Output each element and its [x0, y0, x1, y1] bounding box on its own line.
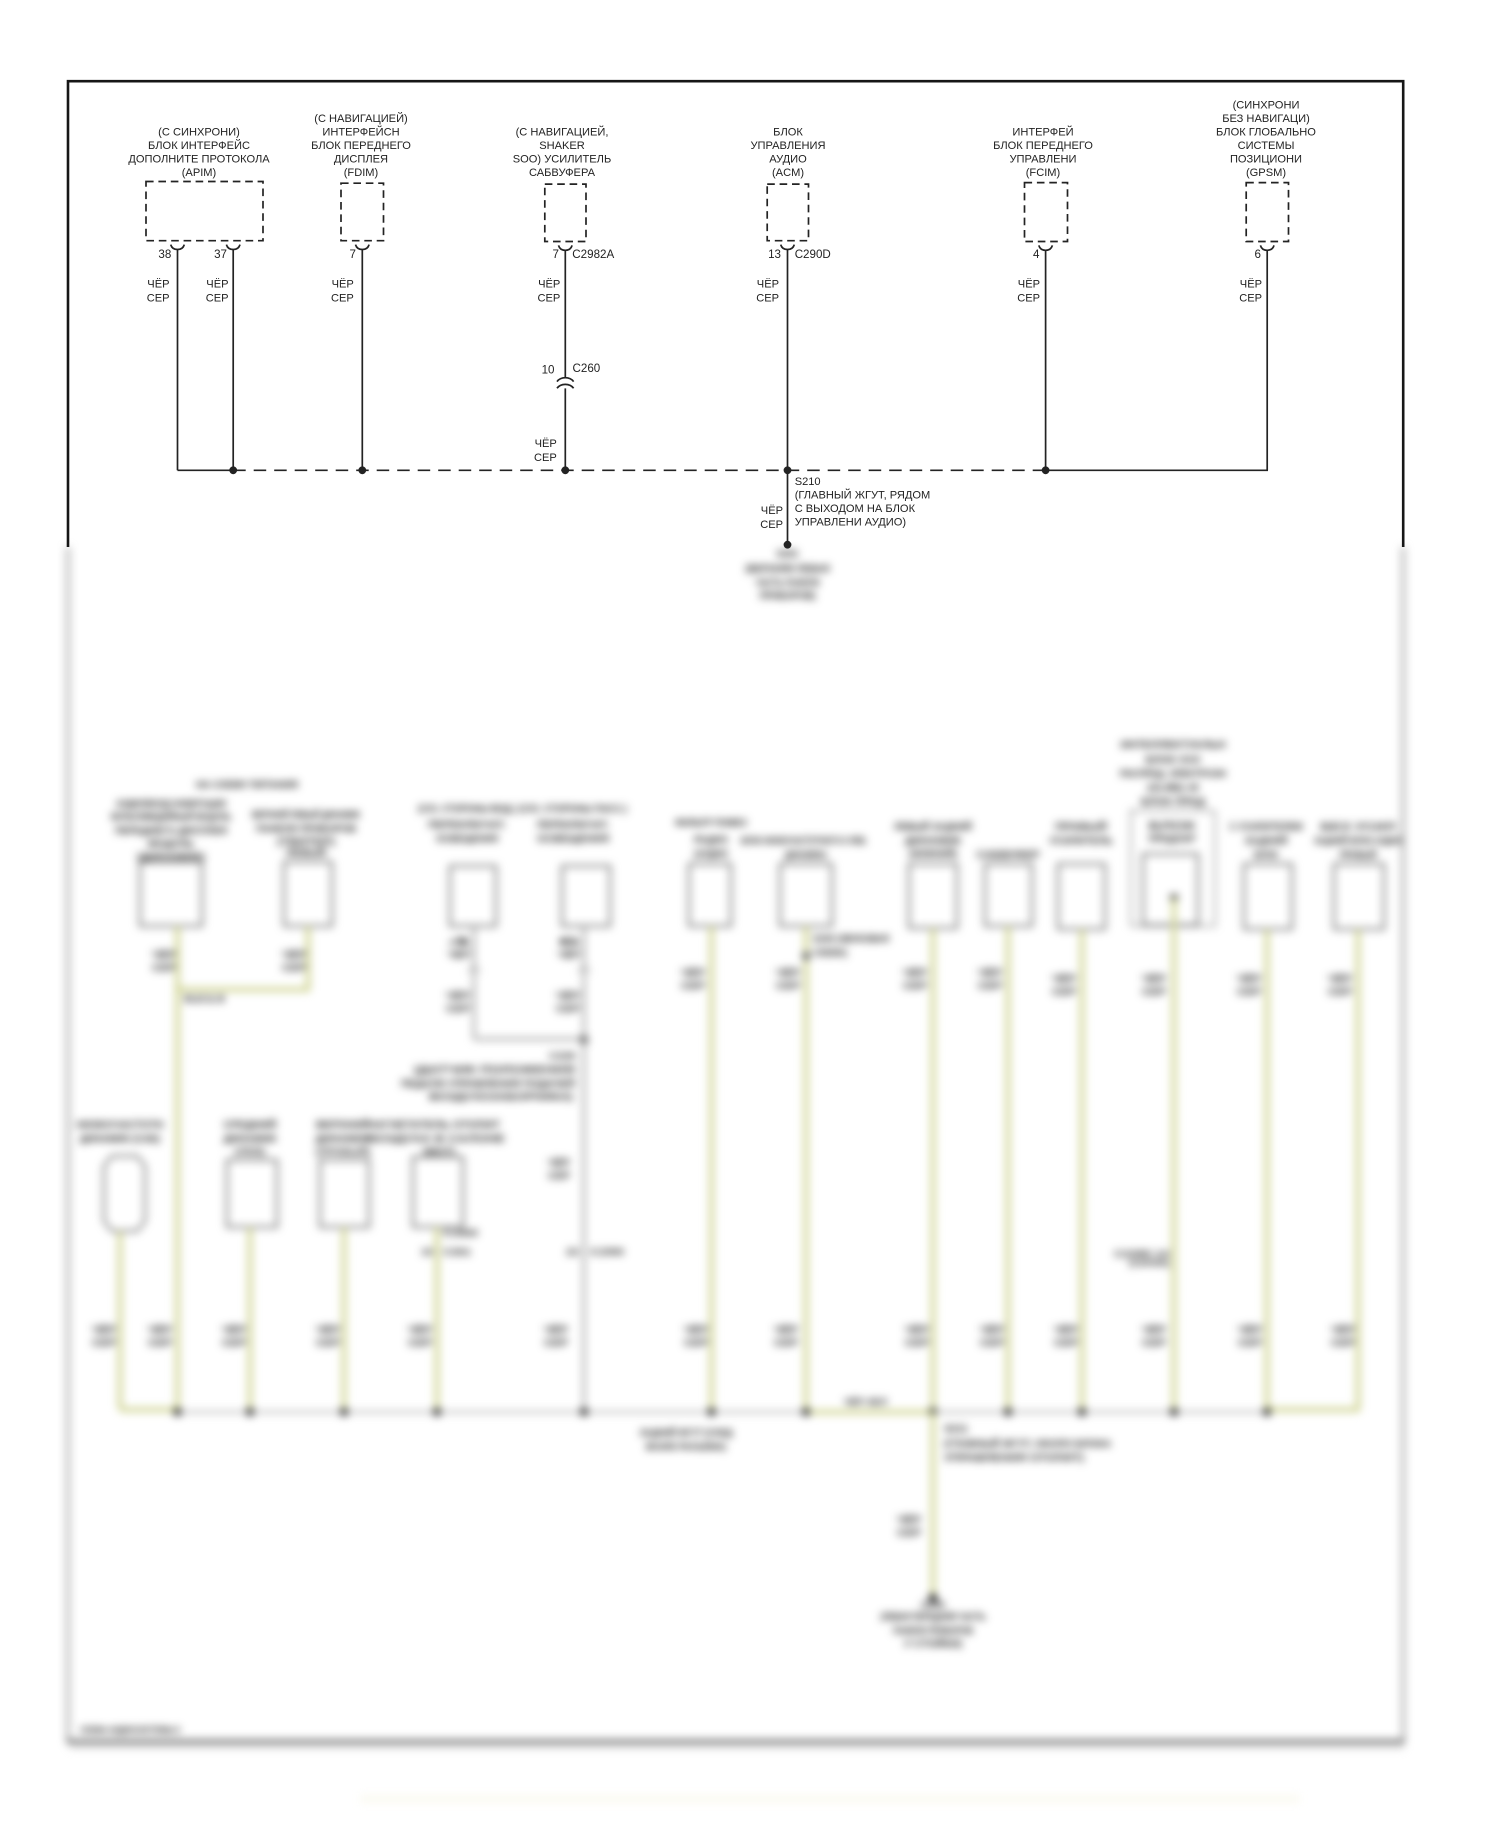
svg-text:ЧЁР: ЧЁР — [1018, 279, 1040, 291]
svg-text:6: 6 — [1255, 248, 1261, 261]
svg-text:(ГЛАВНЫЙ ЖГУТ, РЯДОМ: (ГЛАВНЫЙ ЖГУТ, РЯДОМ — [795, 488, 931, 501]
svg-text:7: 7 — [553, 248, 559, 261]
svg-text:(С НАВИГАЦИЕЙ,: (С НАВИГАЦИЕЙ, — [516, 126, 609, 139]
svg-text:СЕР: СЕР — [331, 293, 354, 305]
svg-text:СЕР: СЕР — [537, 293, 560, 305]
svg-text:УПРАВЛЕНИ АУДИО): УПРАВЛЕНИ АУДИО) — [795, 516, 906, 528]
svg-text:ДОПОЛНИТЕ ПРОТОКОЛА: ДОПОЛНИТЕ ПРОТОКОЛА — [128, 154, 270, 166]
svg-text:ИНТЕРФЕЙ: ИНТЕРФЕЙ — [1012, 126, 1073, 139]
svg-text:(С НАВИГАЦИЕЙ): (С НАВИГАЦИЕЙ) — [314, 112, 407, 125]
svg-text:АУДИО: АУДИО — [769, 154, 807, 166]
svg-text:БЛОК ПЕРЕДНЕГО: БЛОК ПЕРЕДНЕГО — [311, 140, 411, 152]
svg-text:SOO) УСИЛИТЕЛЬ: SOO) УСИЛИТЕЛЬ — [513, 154, 611, 166]
svg-text:БЛОК ГЛОБАЛЬНО: БЛОК ГЛОБАЛЬНО — [1216, 127, 1316, 139]
svg-text:СЕР: СЕР — [534, 452, 557, 464]
svg-text:ЧЁР: ЧЁР — [147, 279, 169, 291]
svg-text:ДИСПЛЕЯ: ДИСПЛЕЯ — [334, 154, 388, 166]
svg-text:37: 37 — [214, 248, 227, 261]
svg-text:C2982A: C2982A — [572, 248, 614, 261]
svg-text:C260: C260 — [573, 362, 601, 375]
svg-text:S210: S210 — [795, 476, 821, 488]
svg-text:(FDIM): (FDIM) — [344, 167, 379, 179]
svg-text:СЕР: СЕР — [1239, 293, 1262, 305]
svg-text:(APIM): (APIM) — [182, 167, 217, 179]
svg-text:УПРАВЛЕНИ: УПРАВЛЕНИ — [1009, 154, 1076, 166]
svg-text:БЛОК: БЛОК — [773, 127, 803, 139]
svg-text:ПОЗИЦИОНИ: ПОЗИЦИОНИ — [1230, 154, 1302, 166]
svg-text:С ВЫХОДОМ НА БЛОК: С ВЫХОДОМ НА БЛОК — [795, 503, 916, 515]
svg-text:(СИНХРОНИ: (СИНХРОНИ — [1233, 100, 1300, 112]
svg-text:ЧЁР: ЧЁР — [206, 279, 228, 291]
svg-text:(FCIM): (FCIM) — [1026, 167, 1061, 179]
svg-text:SHAKER: SHAKER — [539, 140, 585, 152]
svg-text:БЛОК ПЕРЕДНЕГО: БЛОК ПЕРЕДНЕГО — [993, 140, 1093, 152]
svg-text:10: 10 — [542, 364, 555, 377]
svg-text:(С СИНХРОНИ): (С СИНХРОНИ) — [158, 127, 240, 139]
svg-text:38: 38 — [158, 248, 171, 261]
svg-text:СЕР: СЕР — [206, 293, 229, 305]
svg-text:СЕР: СЕР — [147, 293, 170, 305]
svg-text:СИСТЕМЫ: СИСТЕМЫ — [1238, 140, 1295, 152]
svg-text:ЧЁР: ЧЁР — [761, 505, 783, 517]
svg-text:(GPSM): (GPSM) — [1246, 167, 1286, 179]
svg-text:ЧЁР: ЧЁР — [538, 279, 560, 291]
svg-text:САБВУФЕРА: САБВУФЕРА — [529, 167, 596, 179]
svg-text:ЧЁР: ЧЁР — [757, 279, 779, 291]
svg-text:13: 13 — [768, 248, 781, 261]
svg-text:СЕР: СЕР — [1017, 293, 1040, 305]
svg-text:ЧЁР: ЧЁР — [535, 438, 557, 450]
svg-text:БЛОК ИНТЕРФЕЙС: БЛОК ИНТЕРФЕЙС — [148, 139, 250, 152]
svg-text:ЧЁР: ЧЁР — [332, 279, 354, 291]
svg-text:УПРАВЛЕНИЯ: УПРАВЛЕНИЯ — [750, 140, 825, 152]
svg-text:ИНТЕРФЕЙСН: ИНТЕРФЕЙСН — [322, 126, 399, 139]
svg-text:(ACM): (ACM) — [772, 167, 804, 179]
svg-text:7: 7 — [350, 248, 356, 261]
svg-text:4: 4 — [1033, 248, 1040, 261]
svg-text:СЕР: СЕР — [760, 519, 783, 531]
svg-text:СЕР: СЕР — [756, 293, 779, 305]
svg-text:C290D: C290D — [795, 248, 831, 261]
svg-text:ЧЁР: ЧЁР — [1240, 279, 1262, 291]
svg-text:БЕЗ НАВИГАЦИ): БЕЗ НАВИГАЦИ) — [1222, 113, 1310, 125]
